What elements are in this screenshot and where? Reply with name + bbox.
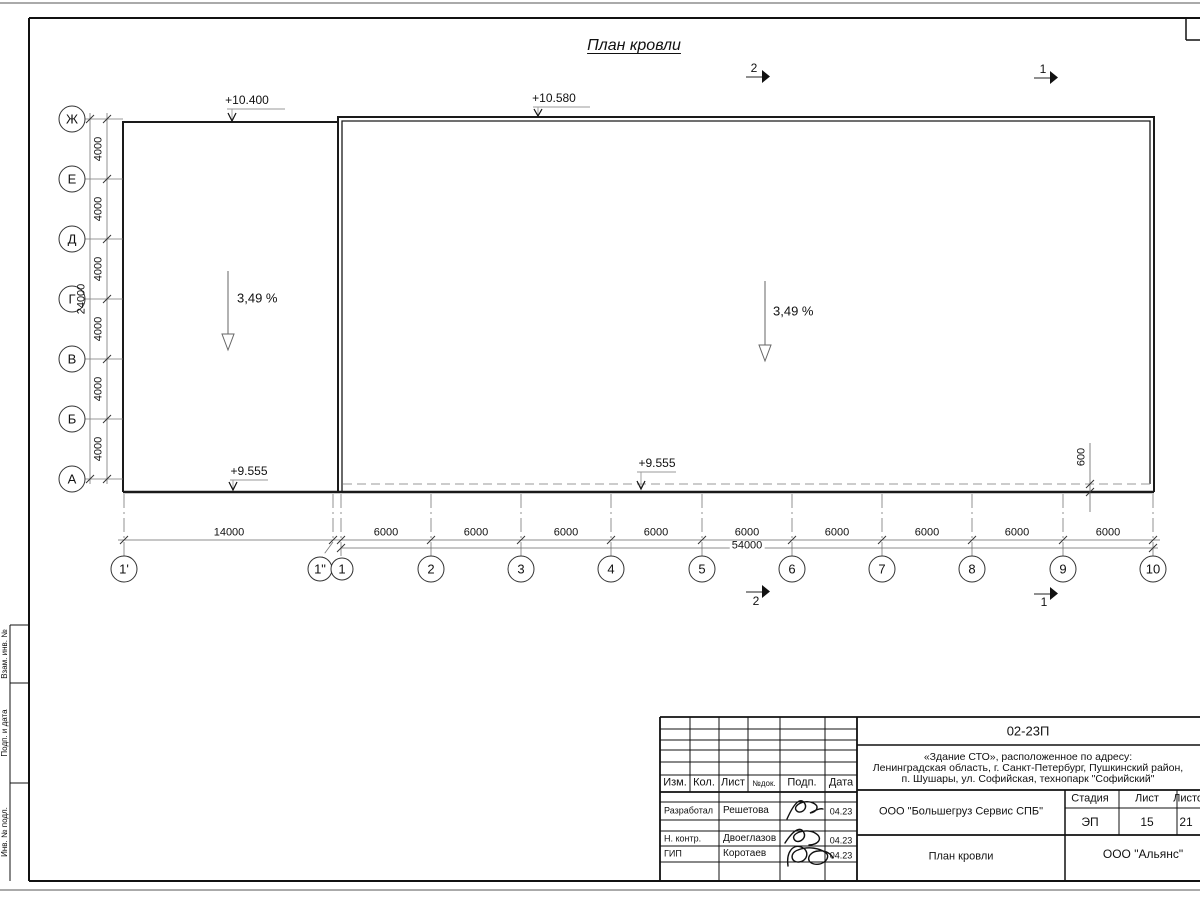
- dim-label-4000: 4000: [94, 317, 105, 341]
- project-address-line2: Ленинградская область, г. Санкт-Петербур…: [873, 763, 1183, 774]
- stage-label: Стадия: [1071, 794, 1109, 805]
- axis-label-10: 10: [1146, 563, 1160, 576]
- row-role-developer: Разработал: [664, 807, 713, 816]
- client-name: ООО "Большегруз Сервис СПБ": [879, 807, 1043, 818]
- axis-label-b: Б: [68, 413, 77, 426]
- axis-label-g: Г: [68, 293, 75, 306]
- elevation-arrowheads: [228, 109, 645, 490]
- axis-label-d: Д: [68, 233, 77, 246]
- dim-label-6000: 6000: [825, 528, 849, 539]
- elevation-marks: [227, 107, 676, 489]
- axis-label-2: 2: [427, 563, 434, 576]
- row-date-ncontrol: 04.23: [830, 837, 853, 846]
- row-name-gip: Коротаев: [723, 849, 766, 859]
- project-code: 02-23П: [1007, 725, 1050, 738]
- dim-label-6000: 6000: [735, 528, 759, 539]
- margin-label-podp: Подп. и дата: [1, 709, 9, 756]
- elevation-label-top-left: +10.400: [225, 94, 269, 106]
- dim-label-4000: 4000: [94, 437, 105, 461]
- axis-label-1p: 1': [119, 563, 129, 576]
- drawing-title: План кровли: [587, 38, 681, 54]
- project-address-line3: п. Шушары, ул. Софийская, технопарк "Соф…: [902, 774, 1155, 785]
- row-name-developer: Решетова: [723, 806, 769, 816]
- drawing-sheet: План кровли Ж Е Д Г В Б А 1' 1" 1 2 3 4 …: [0, 0, 1200, 900]
- elevation-label-bottom-left: +9.555: [230, 465, 267, 477]
- axis-label-9: 9: [1059, 563, 1066, 576]
- row-name-ncontrol: Двоеглазов: [723, 834, 776, 844]
- sheets-total: 21: [1179, 816, 1192, 828]
- section-label-top-2: 2: [751, 62, 758, 74]
- drawing-name: План кровли: [929, 852, 994, 863]
- frame-corner-box: [1186, 18, 1200, 40]
- axis-label-3: 3: [517, 563, 524, 576]
- col-podp: Подп.: [787, 778, 816, 789]
- col-kol: Кол.: [693, 778, 715, 789]
- dim-label-6000: 6000: [1005, 528, 1029, 539]
- section-label-bottom-1: 1: [1041, 596, 1048, 608]
- sheet-label: Лист: [1135, 794, 1159, 805]
- section-label-top-1: 1: [1040, 63, 1047, 75]
- dim-label-6000: 6000: [644, 528, 668, 539]
- dim-label-6000: 6000: [554, 528, 578, 539]
- left-axis-lines: [85, 113, 123, 484]
- axis-label-a: А: [68, 473, 77, 486]
- dim-label-4000: 4000: [94, 257, 105, 281]
- stage-value: ЭП: [1081, 816, 1098, 828]
- building-outline: [123, 117, 1154, 492]
- margin-label-vzam: Взам. инв. №: [1, 629, 9, 679]
- axis-label-1: 1: [338, 563, 345, 576]
- axis-label-zh: Ж: [66, 113, 78, 126]
- org-name: ООО "Альянс": [1103, 848, 1183, 860]
- row-role-ncontrol: Н. контр.: [664, 835, 701, 844]
- slope-label-right: 3,49 %: [773, 305, 813, 318]
- section-label-bottom-2: 2: [753, 595, 760, 607]
- sheet-number: 15: [1140, 816, 1153, 828]
- dim-label-54000: 54000: [730, 541, 765, 552]
- slope-label-left: 3,49 %: [237, 292, 277, 305]
- axis-label-6: 6: [788, 563, 795, 576]
- axis-label-4: 4: [607, 563, 614, 576]
- axis-label-1pp: 1": [314, 563, 326, 576]
- col-izm: Изм.: [663, 778, 687, 789]
- dim-label-6000: 6000: [464, 528, 488, 539]
- row-date-developer: 04.23: [830, 808, 853, 817]
- axis-label-5: 5: [698, 563, 705, 576]
- col-data: Дата: [829, 778, 853, 789]
- dim-label-4000: 4000: [94, 377, 105, 401]
- row-date-gip: 04.23: [830, 852, 853, 861]
- sheets-label: Листов: [1173, 794, 1200, 805]
- dim-label-6000: 6000: [374, 528, 398, 539]
- project-address-line1: «Здание СТО», расположенное по адресу:: [924, 752, 1132, 763]
- margin-cells: [10, 625, 29, 881]
- axis-label-7: 7: [878, 563, 885, 576]
- dim-label-24000: 24000: [77, 284, 88, 315]
- col-ndok: №док.: [752, 780, 775, 788]
- margin-label-inv: Инв. № подл.: [1, 807, 9, 857]
- axis-circles: [59, 106, 1166, 582]
- signature-scribbles: [785, 801, 833, 866]
- slope-arrows: [222, 271, 771, 361]
- dim-label-14000: 14000: [214, 528, 245, 539]
- section-marks: [746, 70, 1058, 600]
- elevation-label-top-mid: +10.580: [532, 92, 576, 104]
- dim-label-4000: 4000: [94, 197, 105, 221]
- dim-label-4000: 4000: [94, 137, 105, 161]
- dim-label-600: 600: [1077, 448, 1088, 466]
- row-role-gip: ГИП: [664, 850, 682, 859]
- elevation-label-bottom-mid: +9.555: [638, 457, 675, 469]
- axis-label-v: В: [68, 353, 77, 366]
- axis-label-e: Е: [68, 173, 77, 186]
- dim-label-6000: 6000: [1096, 528, 1120, 539]
- bottom-axis-lines: [124, 494, 1153, 558]
- axis-label-8: 8: [968, 563, 975, 576]
- col-list: Лист: [721, 778, 745, 789]
- dim-label-6000: 6000: [915, 528, 939, 539]
